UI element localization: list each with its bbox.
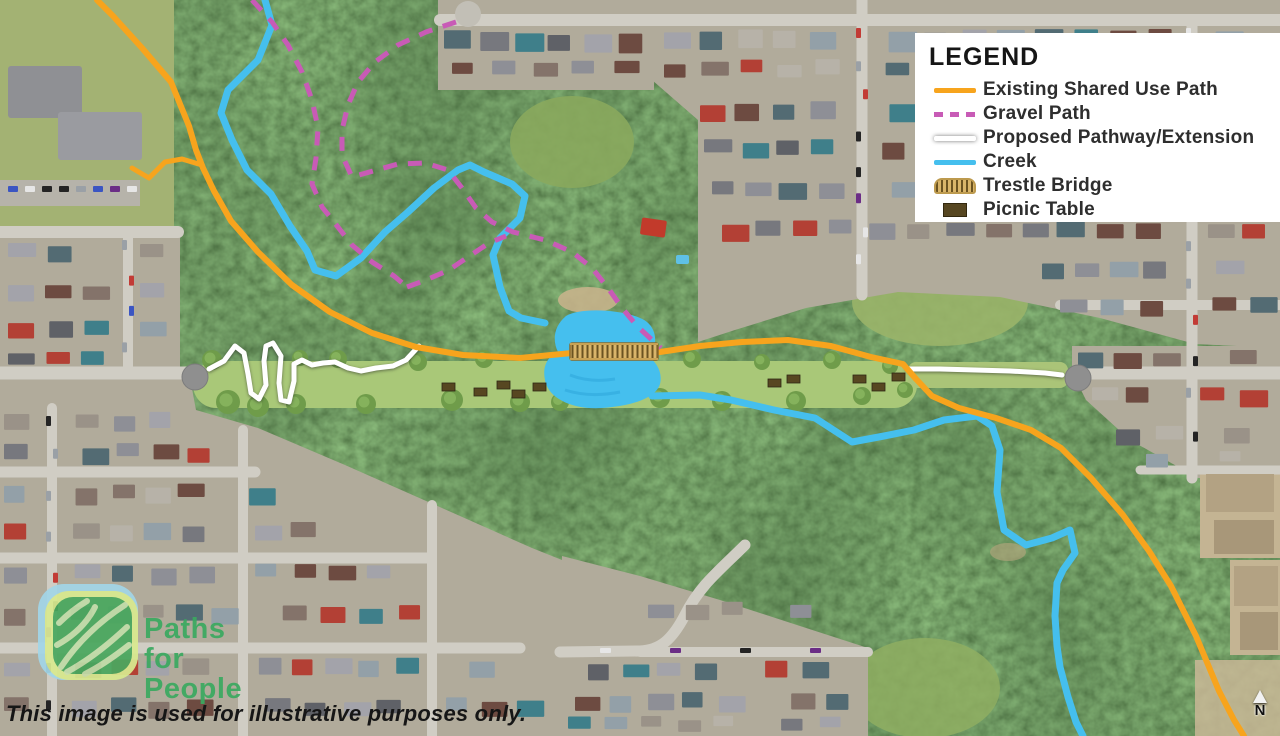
paths-for-people-logo-icon [36,582,140,682]
legend-item: Proposed Pathway/Extension [927,126,1280,150]
legend: LEGEND Existing Shared Use Path Gravel P… [915,33,1280,222]
picnic-table-icon [943,203,967,217]
trestle-bridge-icon [934,178,976,194]
existing-shared-use-path-swatch [934,88,976,93]
legend-item: Creek [927,150,1280,174]
paths-for-people-wordmark: Paths for People [144,614,242,704]
legend-item: Gravel Path [927,102,1280,126]
west-trailhead [182,364,208,390]
map-screenshot: LEGEND Existing Shared Use Path Gravel P… [0,0,1280,736]
north-arrow-icon [1253,690,1267,703]
legend-item: Picnic Table [927,198,1280,222]
proposed-pathway-swatch [934,136,976,141]
trestle-bridge [570,343,658,360]
legend-item-label: Proposed Pathway/Extension [983,127,1254,149]
gravel-path-swatch [934,112,976,117]
legend-item-label: Picnic Table [983,199,1095,221]
north-arrow: N [1248,690,1272,718]
legend-item-label: Existing Shared Use Path [983,79,1218,101]
legend-item: Existing Shared Use Path [927,78,1280,102]
disclaimer-text: This image is used for illustrative purp… [6,701,526,727]
legend-item-label: Gravel Path [983,103,1091,125]
legend-item: Trestle Bridge [927,174,1280,198]
north-arrow-label: N [1248,703,1272,718]
legend-item-label: Trestle Bridge [983,175,1113,197]
creek-swatch [934,160,976,165]
paths-for-people-logo: Paths for People [36,582,242,704]
legend-title: LEGEND [929,43,1280,72]
legend-rows: Existing Shared Use Path Gravel Path Pro… [927,78,1280,222]
legend-item-label: Creek [983,151,1037,173]
east-trailhead [1065,365,1091,391]
